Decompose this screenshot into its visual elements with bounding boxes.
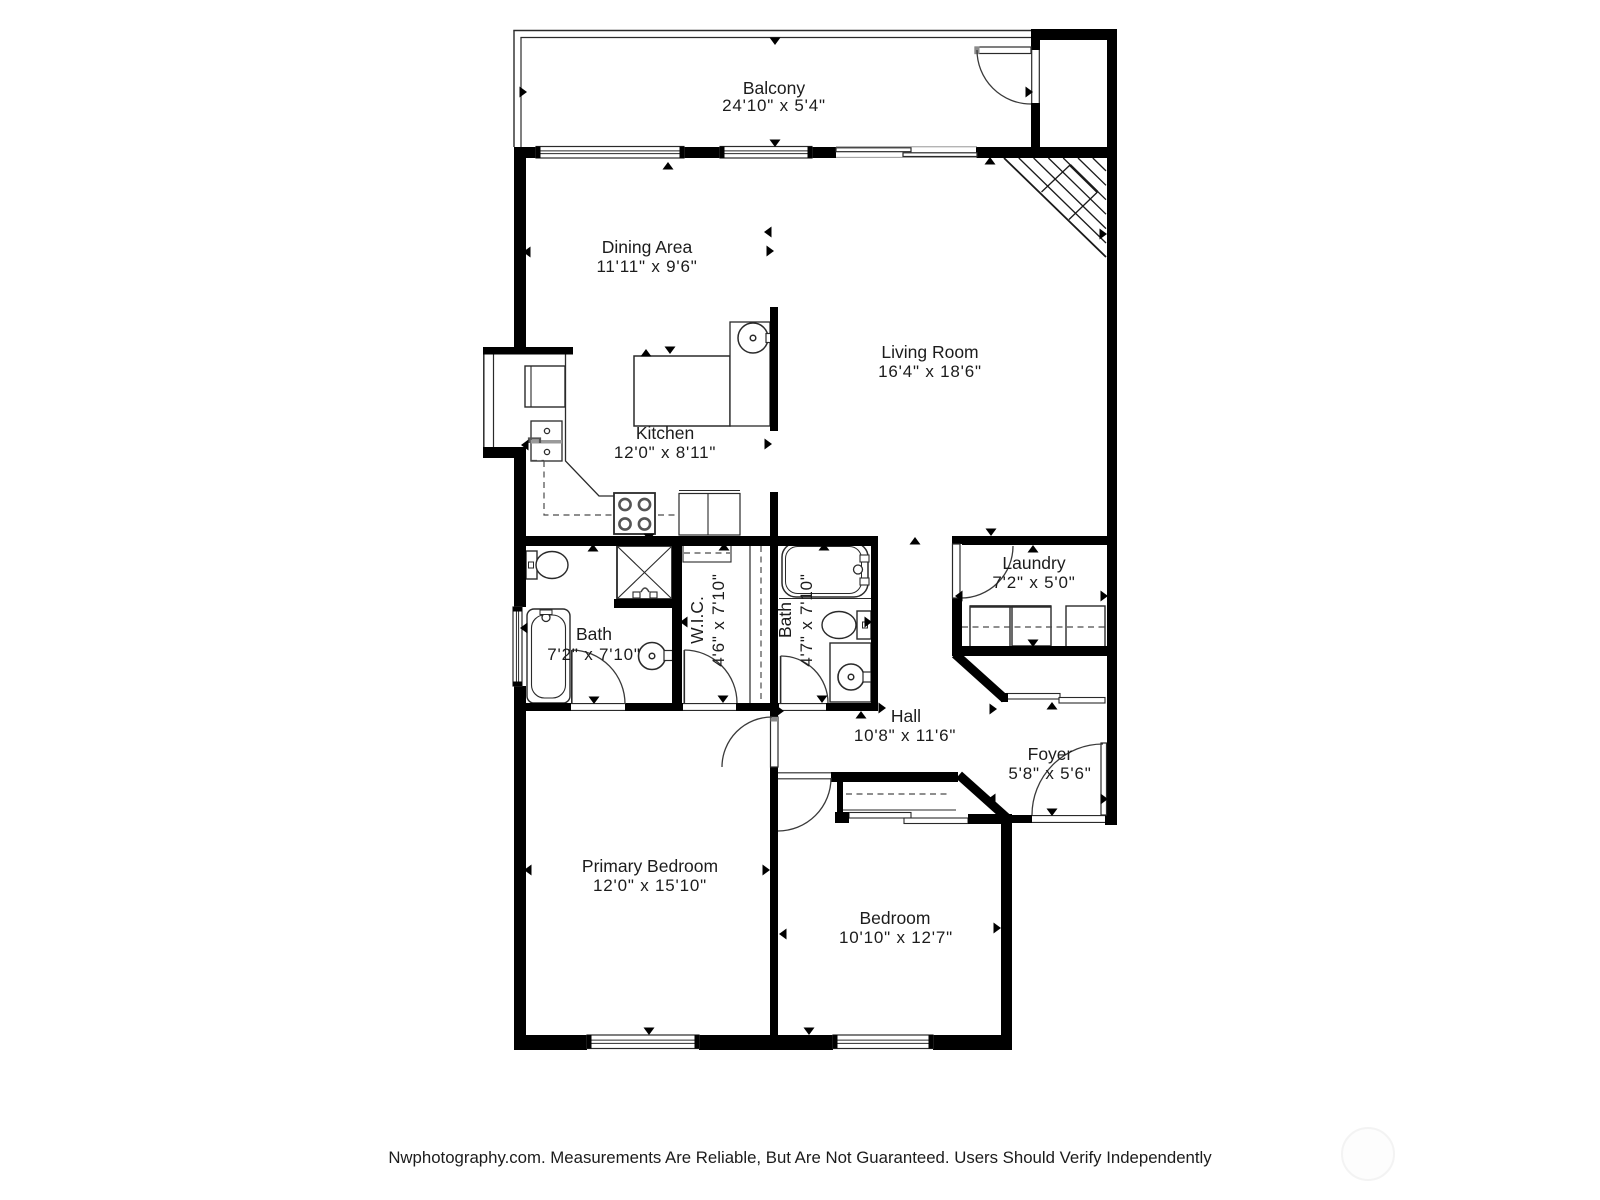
svg-text:Bath: Bath xyxy=(576,624,612,644)
svg-text:11'11" x 9'6": 11'11" x 9'6" xyxy=(596,257,697,276)
svg-text:W.I.C.: W.I.C. xyxy=(687,596,707,644)
svg-text:Laundry: Laundry xyxy=(1002,553,1065,573)
svg-text:Nwphotography.com. Measurement: Nwphotography.com. Measurements Are Reli… xyxy=(388,1148,1212,1167)
svg-text:12'0" x 15'10": 12'0" x 15'10" xyxy=(593,876,707,895)
svg-text:Bath: Bath xyxy=(775,602,795,638)
svg-text:Primary Bedroom: Primary Bedroom xyxy=(582,856,718,876)
svg-text:12'0" x 8'11": 12'0" x 8'11" xyxy=(614,443,716,462)
svg-text:7'2" x 7'10": 7'2" x 7'10" xyxy=(547,645,640,664)
svg-text:Kitchen: Kitchen xyxy=(636,423,694,443)
svg-text:10'10" x 12'7": 10'10" x 12'7" xyxy=(839,928,953,947)
svg-text:10'8" x 11'6": 10'8" x 11'6" xyxy=(854,726,956,745)
svg-text:Living Room: Living Room xyxy=(881,342,978,362)
svg-text:16'4" x 18'6": 16'4" x 18'6" xyxy=(878,362,982,381)
svg-text:4'7" x 7'10": 4'7" x 7'10" xyxy=(797,573,816,666)
svg-text:4'6" x 7'10": 4'6" x 7'10" xyxy=(709,573,728,666)
svg-text:5'8" x 5'6": 5'8" x 5'6" xyxy=(1008,764,1091,783)
svg-text:Dining Area: Dining Area xyxy=(602,237,693,257)
svg-text:Balcony: Balcony xyxy=(743,78,806,98)
svg-text:Hall: Hall xyxy=(891,706,921,726)
svg-text:24'10" x 5'4": 24'10" x 5'4" xyxy=(722,96,826,115)
svg-text:Bedroom: Bedroom xyxy=(859,908,930,928)
svg-text:7'2" x 5'0": 7'2" x 5'0" xyxy=(992,573,1075,592)
svg-text:Foyer: Foyer xyxy=(1028,744,1073,764)
